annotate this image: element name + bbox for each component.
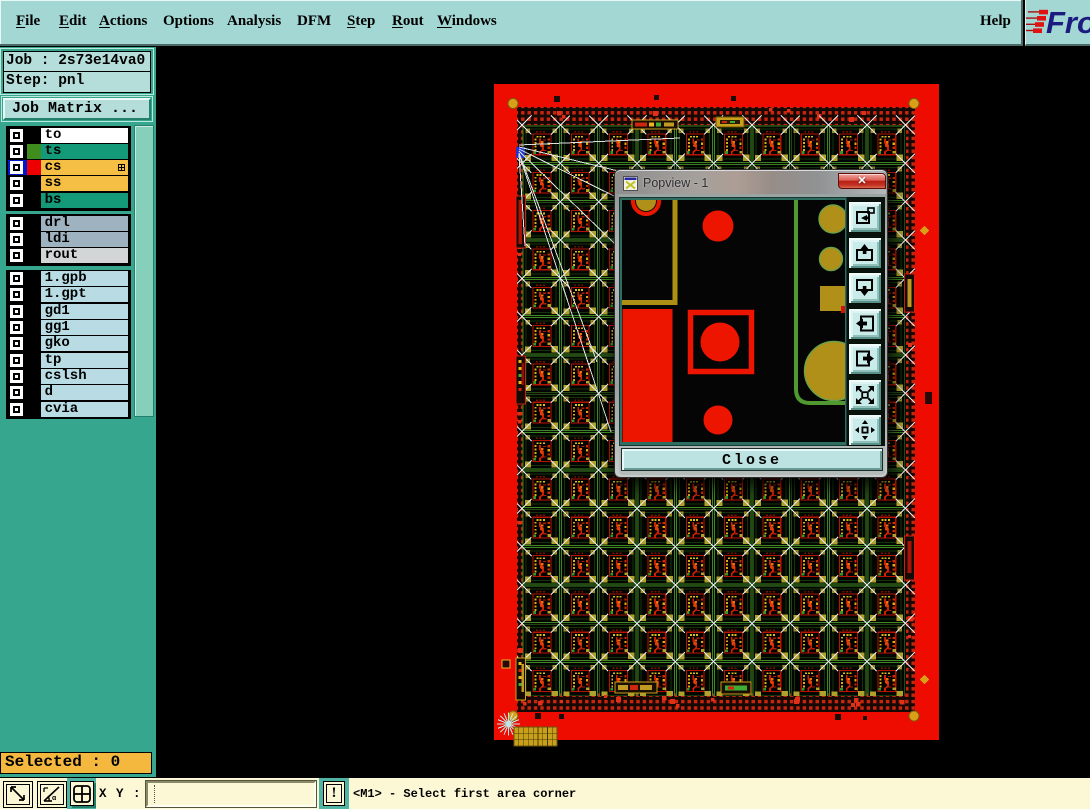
svg-text:Fro: Fro [1046,5,1090,40]
svg-text:α: α [52,795,57,802]
